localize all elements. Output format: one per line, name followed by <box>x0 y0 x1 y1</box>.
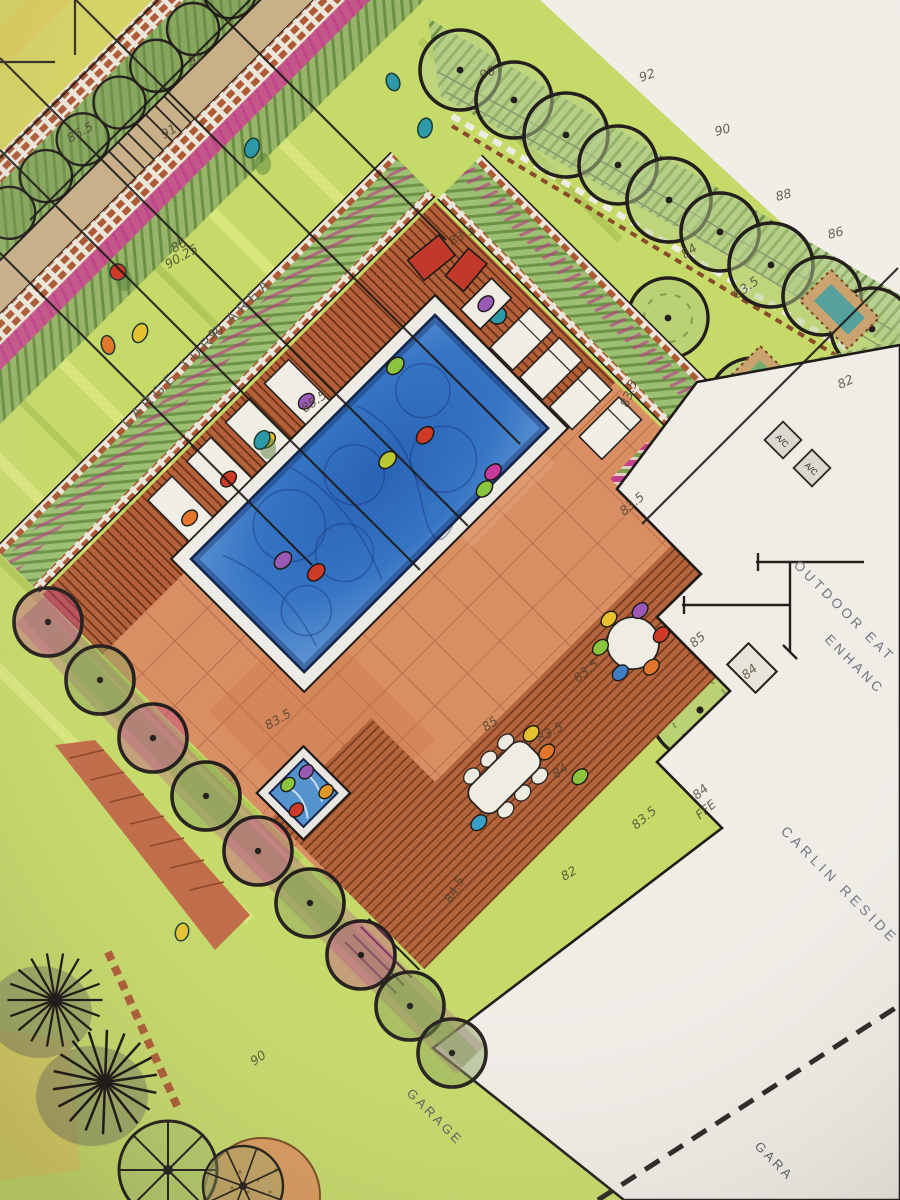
landscape-plan-drawing: A/C A/C <box>0 0 900 1200</box>
photo-vignette <box>0 0 900 1200</box>
plan-photo: A/C A/C <box>0 0 900 1200</box>
